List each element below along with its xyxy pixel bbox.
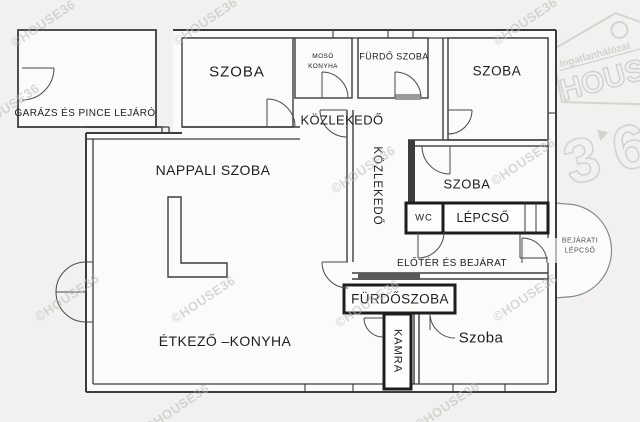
label-moso-konyha-line2: KONYHA (308, 64, 338, 71)
door-terrace-lower (56, 292, 86, 322)
label-szoba-top-left: SZOBA (209, 65, 265, 80)
floor-plan: Ingatlanhálózat HOUSE 3 6 (0, 0, 640, 422)
label-szoba-bottom: Szoba (459, 331, 504, 346)
label-furdo-szoba: FÜRDŐ SZOBA (359, 53, 428, 62)
label-szoba-middle: SZOBA (443, 178, 490, 191)
house36-logo: Ingatlanhálózat HOUSE 3 6 (550, 11, 640, 200)
label-moso-konyha-line1: MOSÓ (312, 54, 333, 61)
furdo-threshold (395, 94, 421, 100)
middle-szoba-thick-wall (408, 140, 415, 203)
label-kozlekedo-vertical: KÖZLEKEDŐ (370, 146, 382, 225)
room-szoba-middle (414, 146, 548, 203)
room-szoba-top-left (182, 38, 293, 127)
door-terrace-upper (56, 262, 86, 292)
label-bejarati-lepcso-line1: BEJÁRATI (562, 238, 598, 245)
label-kozlekedo-horizontal: KÖZLEKEDŐ (300, 114, 383, 127)
logo-digit-right: 6 (605, 110, 640, 186)
label-wc: WC (415, 213, 433, 223)
label-eloter-es-bejarat: ELŐTÉR ÉS BEJÁRAT (397, 259, 507, 269)
foyer-threshold (358, 273, 420, 280)
label-furdoszoba: FÜRDŐSZOBA (351, 292, 449, 306)
label-kamra: KAMRA (392, 329, 403, 373)
logo-tag-hole (611, 22, 628, 39)
label-garage: GARÁZS ÉS PINCE LEJÁRÓ (14, 109, 155, 119)
label-bejarati-lepcso-line2: LÉPCSŐ (565, 248, 596, 255)
label-szoba-top-right: SZOBA (473, 64, 522, 78)
label-etkezo-konyha: ÉTKEZŐ –KONYHA (159, 334, 291, 348)
label-nappali-szoba: NAPPALI SZOBA (156, 163, 271, 177)
label-lepcso: LÉPCSŐ (456, 212, 509, 225)
room-szoba-top-right (448, 38, 548, 140)
room-furdo-szoba (358, 38, 428, 98)
